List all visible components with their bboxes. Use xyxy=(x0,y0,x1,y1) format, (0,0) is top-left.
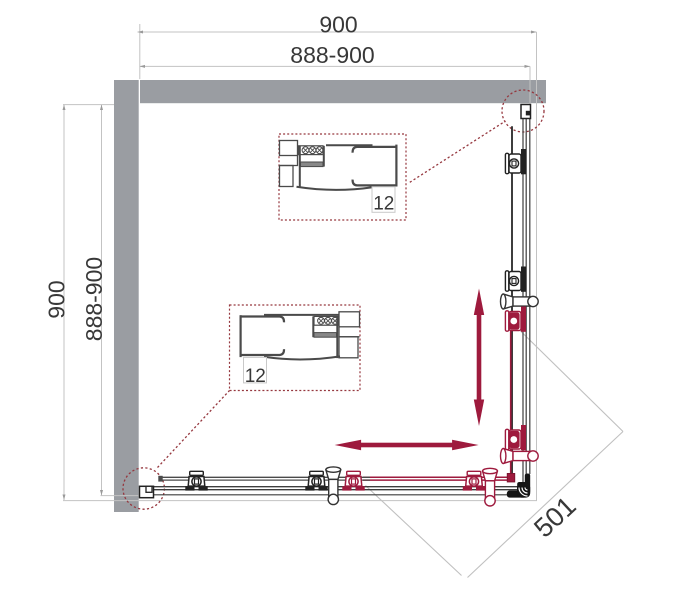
svg-text:888-900: 888-900 xyxy=(81,257,107,341)
svg-text:888-900: 888-900 xyxy=(290,42,374,68)
svg-text:900: 900 xyxy=(319,11,357,37)
svg-text:12: 12 xyxy=(245,366,266,387)
svg-text:12: 12 xyxy=(373,194,394,215)
svg-text:900: 900 xyxy=(43,280,69,318)
